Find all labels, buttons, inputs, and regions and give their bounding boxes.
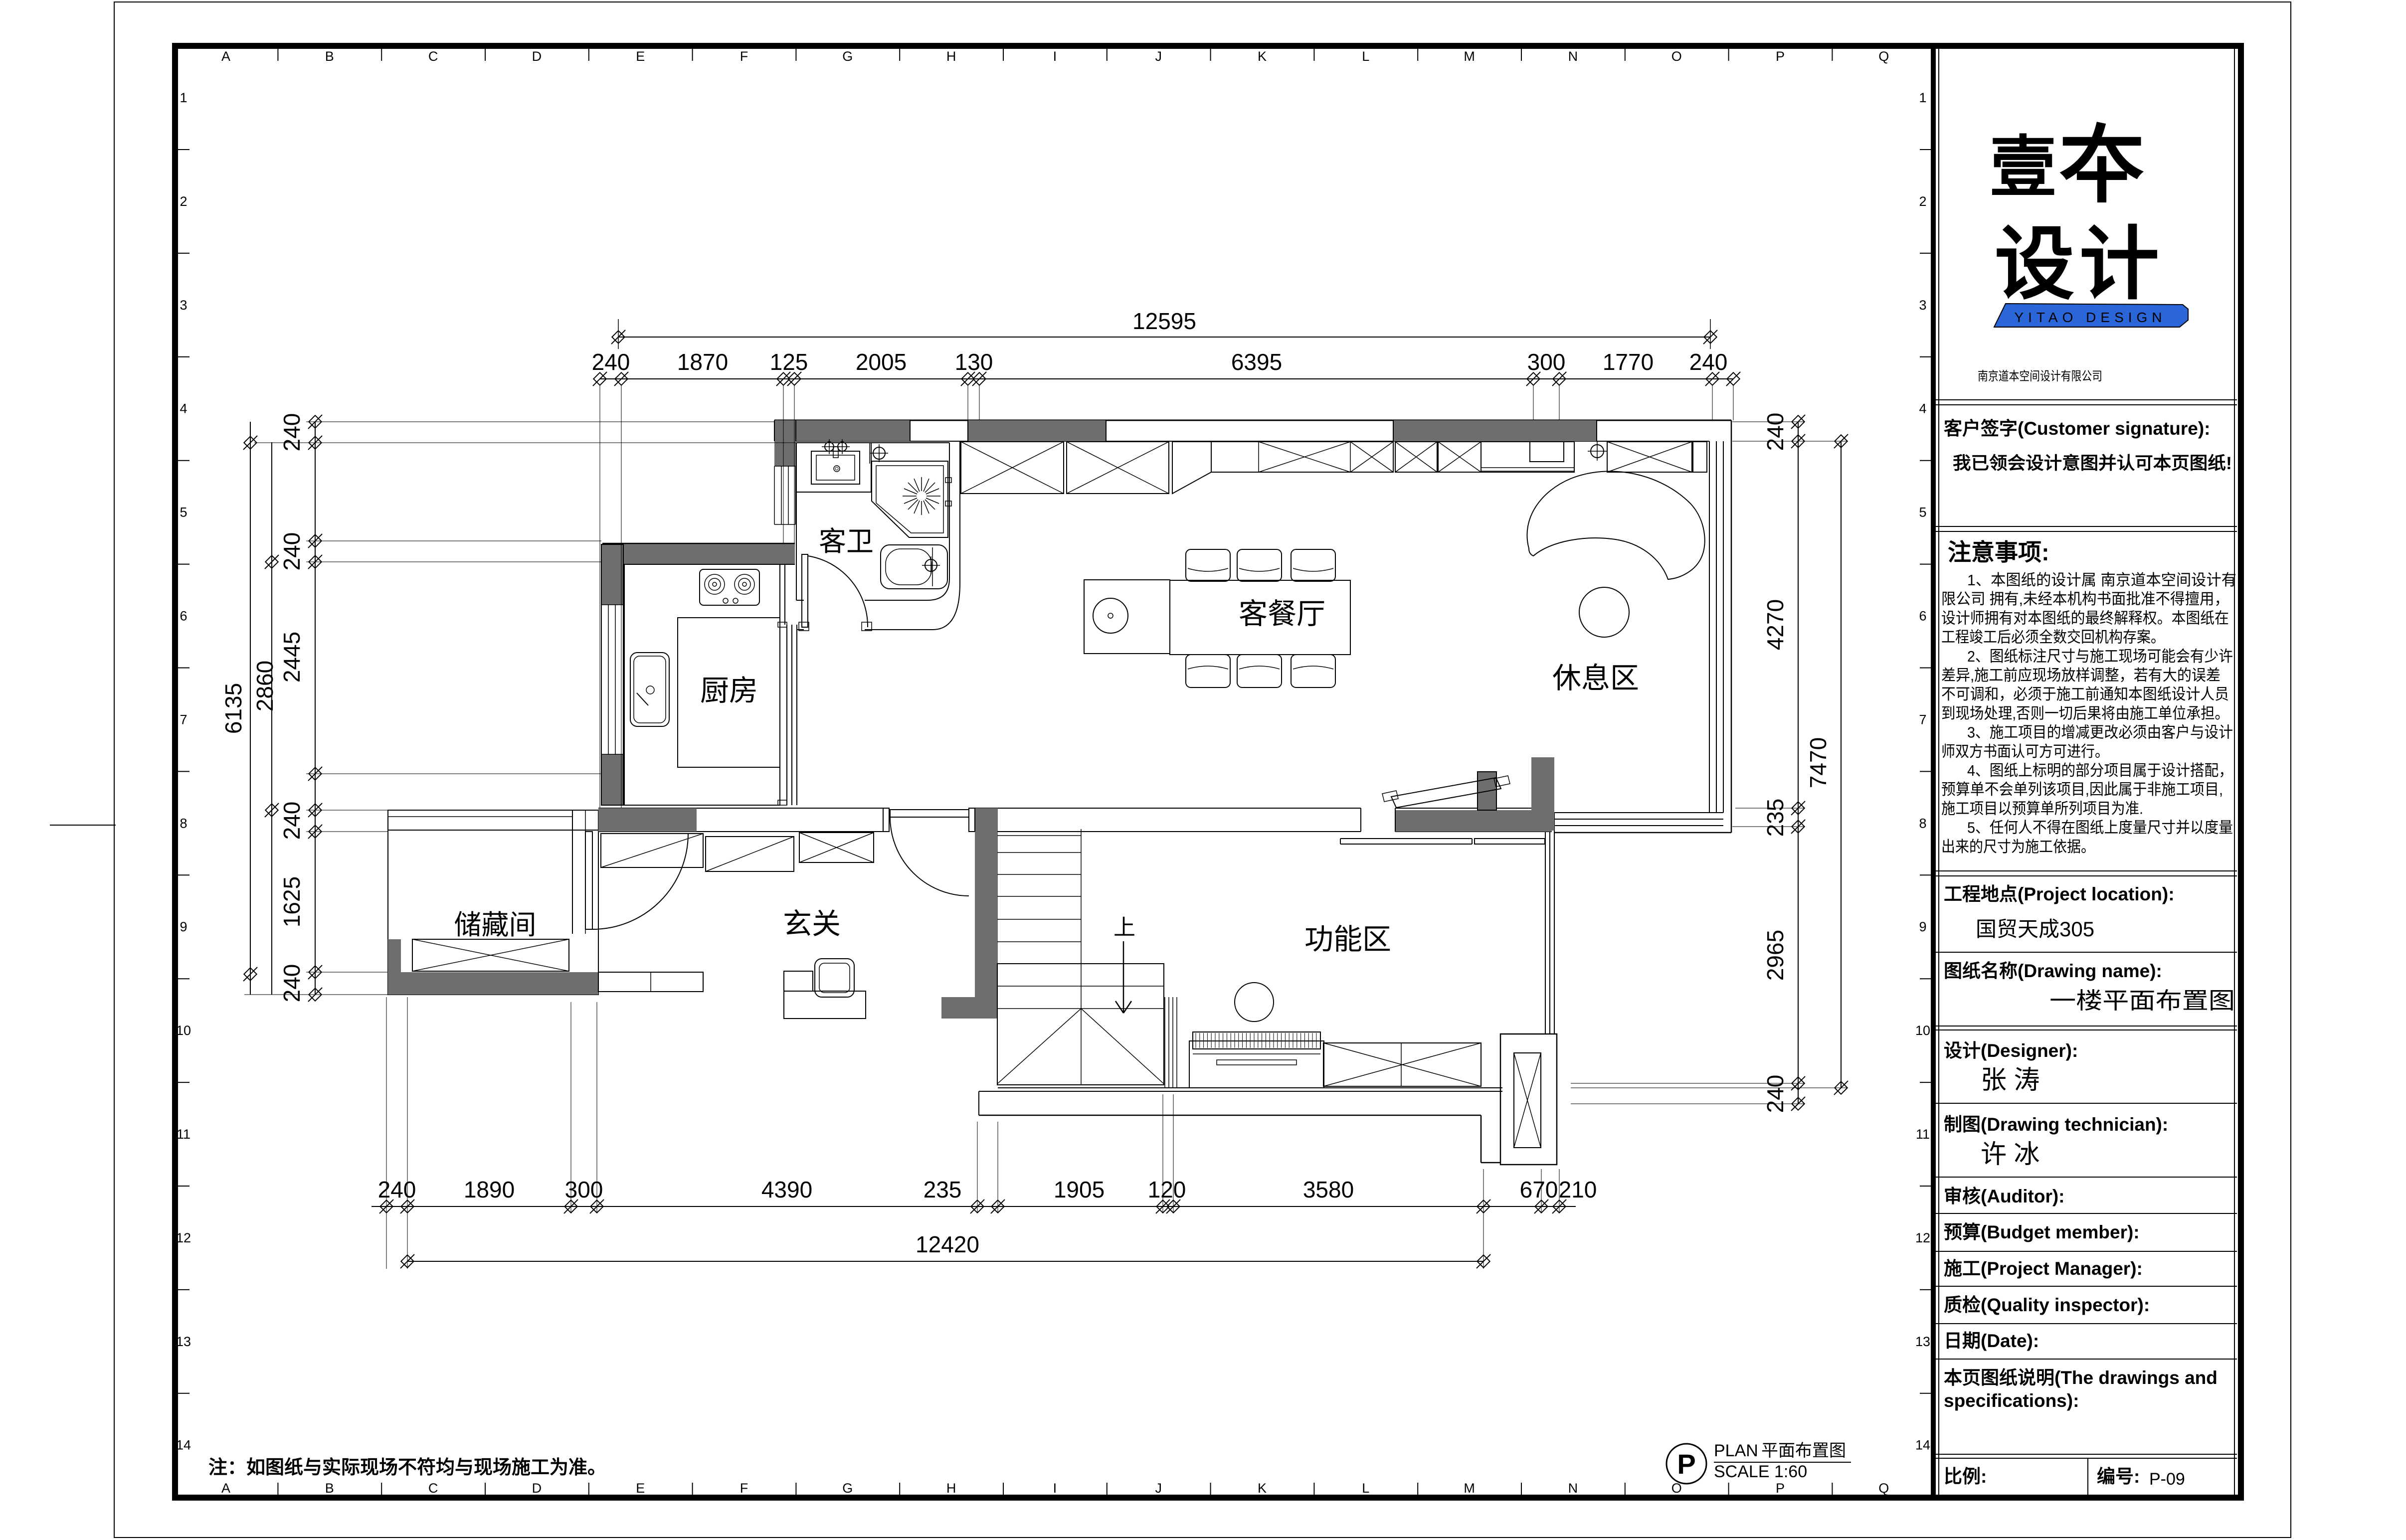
svg-text:240: 240 [1689, 349, 1728, 375]
svg-text:14: 14 [1915, 1438, 1930, 1453]
svg-text:G: G [842, 49, 853, 64]
svg-text:夲: 夲 [2059, 118, 2144, 213]
svg-text:1870: 1870 [677, 349, 728, 375]
svg-text:11: 11 [177, 1127, 190, 1142]
svg-text:120: 120 [1148, 1177, 1186, 1202]
svg-text:235: 235 [924, 1177, 962, 1202]
svg-text:130: 130 [955, 349, 993, 375]
svg-text:上: 上 [1113, 915, 1135, 940]
svg-text:M: M [1464, 1481, 1475, 1496]
svg-text:Q: Q [1878, 1481, 1889, 1496]
svg-text:N: N [1568, 1481, 1578, 1496]
svg-text:4270: 4270 [1762, 599, 1788, 650]
svg-text:10: 10 [176, 1023, 191, 1038]
svg-text:J: J [1155, 1481, 1162, 1496]
svg-text:3580: 3580 [1303, 1177, 1354, 1202]
svg-text:C: C [428, 49, 438, 64]
svg-text:(Auditor):: (Auditor): [1981, 1186, 2065, 1206]
svg-text:P: P [1776, 1481, 1785, 1496]
svg-text:(Designer):: (Designer): [1981, 1040, 2078, 1061]
svg-text:10: 10 [1915, 1023, 1930, 1038]
svg-text:13: 13 [176, 1334, 191, 1349]
svg-text:5: 5 [1919, 505, 1926, 520]
svg-text:差异,施工前应现场放样调整，若有大的误差: 差异,施工前应现场放样调整，若有大的误差 [1941, 667, 2221, 684]
svg-text:平面布置图: 平面布置图 [1761, 1441, 1846, 1460]
svg-text:240: 240 [279, 964, 305, 1003]
svg-text:功能区: 功能区 [1304, 923, 1391, 956]
svg-text:H: H [946, 49, 956, 64]
svg-text:L: L [1362, 1481, 1369, 1496]
svg-text:300: 300 [1527, 349, 1566, 375]
svg-text:设计: 设计 [1944, 1040, 1981, 1061]
svg-text:12595: 12595 [1132, 308, 1196, 334]
svg-text:我已领会设计意图并认可本页图纸!: 我已领会设计意图并认可本页图纸! [1953, 454, 2232, 473]
svg-text:客卫: 客卫 [819, 526, 874, 557]
svg-text:客餐厅: 客餐厅 [1239, 598, 1325, 630]
svg-text:E: E [636, 1481, 645, 1496]
svg-text:日期: 日期 [1944, 1331, 1981, 1351]
svg-text:4、图纸上标明的部分项目属于设计搭配，: 4、图纸上标明的部分项目属于设计搭配， [1967, 762, 2233, 779]
svg-text:O: O [1671, 49, 1682, 64]
svg-text:B: B [325, 49, 334, 64]
svg-text:7: 7 [180, 712, 187, 727]
svg-text:编号:: 编号: [2097, 1466, 2140, 1487]
svg-text:240: 240 [1762, 1075, 1788, 1113]
svg-text:240: 240 [378, 1177, 416, 1202]
svg-text:P: P [1776, 49, 1785, 64]
svg-text:12: 12 [176, 1230, 191, 1245]
svg-text:240: 240 [279, 532, 305, 571]
svg-text:(Customer signature):: (Customer signature): [2018, 418, 2210, 439]
svg-text:(Project Manager):: (Project Manager): [1981, 1258, 2143, 1279]
svg-text:玄关: 玄关 [783, 908, 841, 940]
svg-text:(Drawing technician):: (Drawing technician): [1981, 1114, 2168, 1135]
svg-text:(The drawings and: (The drawings and [2054, 1368, 2218, 1388]
svg-text:I: I [1053, 49, 1057, 64]
svg-text:2: 2 [180, 194, 187, 209]
svg-text:注意事项:: 注意事项: [1948, 539, 2049, 565]
svg-text:师双方书面认可方可进行。: 师双方书面认可方可进行。 [1941, 743, 2109, 760]
svg-text:2860: 2860 [252, 661, 278, 711]
svg-text:预算: 预算 [1944, 1222, 1981, 1242]
svg-text:张 涛: 张 涛 [1981, 1066, 2039, 1095]
svg-text:9: 9 [1919, 919, 1926, 934]
svg-text:5: 5 [180, 505, 187, 520]
svg-text:12: 12 [1915, 1230, 1930, 1245]
svg-text:3: 3 [180, 298, 187, 313]
svg-text:南京道本空间设计有限公司: 南京道本空间设计有限公司 [1978, 369, 2102, 383]
svg-text:B: B [325, 1481, 334, 1496]
svg-text:125: 125 [770, 349, 808, 375]
svg-text:审核: 审核 [1944, 1186, 1981, 1206]
svg-text:限公司 拥有,未经本机构书面批准不得擅用，: 限公司 拥有,未经本机构书面批准不得擅用， [1941, 590, 2229, 608]
svg-text:施工项目以预算单所列项目为准.: 施工项目以预算单所列项目为准. [1941, 800, 2143, 817]
svg-text:D: D [532, 49, 542, 64]
svg-text:E: E [636, 49, 645, 64]
svg-text:国贸天成305: 国贸天成305 [1976, 917, 2094, 941]
svg-text:4: 4 [1919, 401, 1926, 416]
svg-text:1: 1 [180, 90, 187, 105]
svg-text:客户签字: 客户签字 [1944, 418, 2018, 439]
svg-text:1905: 1905 [1054, 1177, 1105, 1202]
svg-text:F: F [740, 49, 748, 64]
svg-text:2005: 2005 [856, 349, 907, 375]
svg-text:A: A [221, 1481, 230, 1496]
svg-text:3: 3 [1919, 298, 1926, 313]
svg-text:SCALE 1:60: SCALE 1:60 [1714, 1462, 1807, 1481]
svg-text:许 冰: 许 冰 [1981, 1140, 2039, 1169]
svg-text:储藏间: 储藏间 [454, 909, 536, 940]
svg-text:4: 4 [180, 401, 187, 416]
svg-text:8: 8 [1919, 816, 1926, 831]
svg-text:9: 9 [180, 919, 187, 934]
svg-text:出来的尺寸为施工依据。: 出来的尺寸为施工依据。 [1941, 838, 2095, 856]
svg-text:F: F [740, 1481, 748, 1496]
svg-text:2: 2 [1919, 194, 1926, 209]
svg-text:(Budget member):: (Budget member): [1981, 1222, 2140, 1242]
svg-text:7: 7 [1919, 712, 1926, 727]
svg-text:300: 300 [565, 1177, 603, 1202]
svg-text:(Project location):: (Project location): [2018, 884, 2175, 904]
svg-text:I: I [1053, 1481, 1057, 1496]
svg-text:11: 11 [1916, 1127, 1930, 1142]
svg-text:设计师拥有对本图纸的最终解释权。本图纸在: 设计师拥有对本图纸的最终解释权。本图纸在 [1941, 609, 2229, 627]
svg-text:施工: 施工 [1944, 1258, 1981, 1279]
svg-text:注：如图纸与实际现场不符均与现场施工为准。: 注：如图纸与实际现场不符均与现场施工为准。 [208, 1457, 606, 1478]
svg-text:(Date):: (Date): [1981, 1331, 2039, 1351]
svg-text:工程地点: 工程地点 [1944, 884, 2018, 904]
svg-text:1890: 1890 [464, 1177, 515, 1202]
svg-text:240: 240 [1762, 413, 1788, 451]
svg-text:12420: 12420 [916, 1231, 979, 1257]
svg-text:1: 1 [1919, 90, 1926, 105]
svg-text:14: 14 [176, 1438, 191, 1453]
svg-text:6: 6 [180, 609, 187, 624]
svg-text:6395: 6395 [1231, 349, 1282, 375]
svg-text:(Quality inspector):: (Quality inspector): [1981, 1295, 2150, 1315]
svg-text:制图: 制图 [1944, 1114, 1981, 1135]
svg-text:specifications):: specifications): [1944, 1390, 2079, 1411]
svg-text:670: 670 [1520, 1177, 1558, 1202]
svg-text:本页图纸说明: 本页图纸说明 [1944, 1368, 2054, 1388]
svg-text:13: 13 [1915, 1334, 1930, 1349]
svg-text:240: 240 [279, 802, 305, 840]
svg-text:设: 设 [1995, 219, 2074, 309]
svg-text:P: P [1677, 1448, 1695, 1480]
svg-text:工程竣工后必须全数交回机构存案。: 工程竣工后必须全数交回机构存案。 [1941, 629, 2165, 646]
svg-text:一楼平面布置图: 一楼平面布置图 [2049, 988, 2235, 1014]
svg-text:质检: 质检 [1944, 1295, 1981, 1315]
svg-text:Q: Q [1878, 49, 1889, 64]
svg-text:1、本图纸的设计属 南京道本空间设计有: 1、本图纸的设计属 南京道本空间设计有 [1967, 571, 2236, 589]
svg-text:A: A [221, 49, 230, 64]
svg-text:6: 6 [1919, 609, 1926, 624]
svg-text:G: G [842, 1481, 853, 1496]
svg-text:3、施工项目的增减更改必须由客户与设计: 3、施工项目的增减更改必须由客户与设计 [1967, 724, 2233, 741]
svg-text:YITAO DESIGN: YITAO DESIGN [2014, 310, 2166, 325]
svg-text:比例:: 比例: [1944, 1466, 1987, 1487]
svg-text:2、图纸标注尺寸与施工现场可能会有少许: 2、图纸标注尺寸与施工现场可能会有少许 [1967, 648, 2233, 665]
svg-text:到现场处理,否则一切后果将由施工单位承担。: 到现场处理,否则一切后果将由施工单位承担。 [1941, 704, 2229, 722]
svg-text:2965: 2965 [1762, 930, 1788, 981]
svg-text:(Drawing name):: (Drawing name): [2018, 961, 2162, 981]
svg-text:K: K [1258, 49, 1267, 64]
svg-text:不可调和，必须于施工前通知本图纸设计人员: 不可调和，必须于施工前通知本图纸设计人员 [1941, 685, 2229, 703]
svg-text:8: 8 [180, 816, 187, 831]
svg-text:C: C [428, 1481, 438, 1496]
svg-text:N: N [1568, 49, 1578, 64]
svg-text:壹: 壹 [1990, 131, 2056, 205]
svg-text:K: K [1258, 1481, 1267, 1496]
svg-text:D: D [532, 1481, 542, 1496]
svg-text:图纸名称: 图纸名称 [1944, 961, 2018, 981]
svg-text:计: 计 [2079, 219, 2159, 309]
svg-text:预算单不会单列该项目,因此属于非施工项目,: 预算单不会单列该项目,因此属于非施工项目, [1941, 781, 2223, 798]
svg-text:M: M [1464, 49, 1475, 64]
svg-text:240: 240 [279, 413, 305, 452]
svg-text:P-09: P-09 [2149, 1470, 2185, 1489]
svg-text:235: 235 [1762, 799, 1788, 837]
svg-text:J: J [1155, 49, 1162, 64]
svg-text:4390: 4390 [761, 1177, 812, 1202]
svg-text:L: L [1362, 49, 1369, 64]
svg-text:H: H [946, 1481, 956, 1496]
svg-text:5、任何人不得在图纸上度量尺寸并以度量: 5、任何人不得在图纸上度量尺寸并以度量 [1967, 819, 2233, 837]
svg-text:240: 240 [592, 349, 630, 375]
svg-text:厨房: 厨房 [700, 675, 758, 707]
svg-text:1625: 1625 [279, 876, 305, 927]
svg-text:PLAN: PLAN [1714, 1441, 1758, 1460]
svg-text:2445: 2445 [279, 632, 305, 683]
svg-text:1770: 1770 [1603, 349, 1654, 375]
svg-text:210: 210 [1559, 1177, 1597, 1202]
svg-text:6135: 6135 [220, 683, 246, 734]
svg-text:7470: 7470 [1805, 737, 1831, 788]
svg-text:休息区: 休息区 [1552, 662, 1639, 694]
